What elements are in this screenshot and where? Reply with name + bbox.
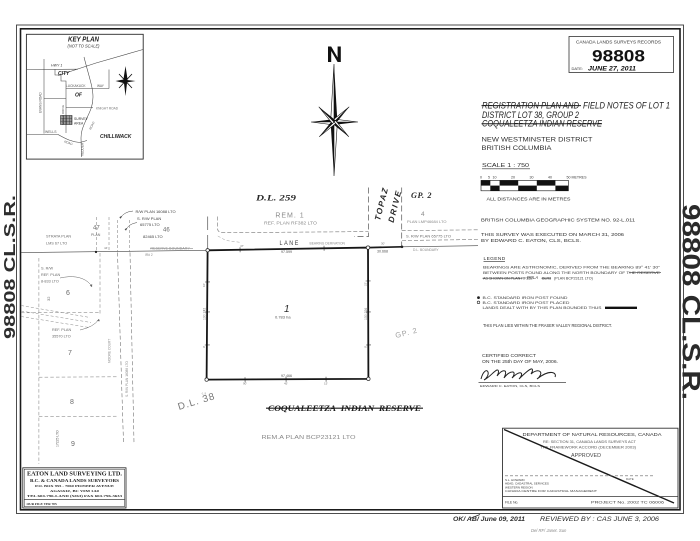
- svg-text:THIS PLAN LIES WITHIN THE FRAS: THIS PLAN LIES WITHIN THE FRASER VALLEY …: [483, 323, 612, 328]
- svg-text:BEARINGS ARE ASTRONOMIC, DERIV: BEARINGS ARE ASTRONOMIC, DERIVED FROM TH…: [483, 266, 661, 270]
- svg-text:GP. 2: GP. 2: [411, 191, 432, 200]
- svg-text:IR# 2: IR# 2: [145, 253, 153, 257]
- svg-text:AGASSIZ, BC V0M 1A0: AGASSIZ, BC V0M 1A0: [50, 489, 99, 493]
- svg-text:Del RF/ Janet. Sun: Del RF/ Janet. Sun: [531, 528, 567, 533]
- svg-text:AREA: AREA: [74, 122, 84, 126]
- svg-text:DATE: DATE: [626, 477, 634, 481]
- svg-text:R/W PLAN 16088 LTO: R/W PLAN 16088 LTO: [136, 209, 176, 214]
- svg-text:32: 32: [46, 296, 51, 301]
- svg-text:CERTIFIED CORRECT: CERTIFIED CORRECT: [482, 353, 536, 358]
- svg-text:PLAN: PLAN: [91, 233, 101, 237]
- svg-text:7: 7: [68, 350, 72, 357]
- svg-text:REVIEWED BY : CAS JUNE 3, 20: REVIEWED BY : CAS JUNE 3, 2006: [540, 517, 660, 523]
- svg-text:46: 46: [163, 228, 170, 234]
- svg-text:17225 LTO: 17225 LTO: [56, 430, 60, 447]
- svg-text:CHILLIWACK: CHILLIWACK: [100, 134, 132, 140]
- svg-text:KNIGHT ROAD: KNIGHT ROAD: [96, 107, 119, 111]
- svg-text:30': 30': [381, 242, 385, 246]
- svg-text:6: 6: [66, 290, 70, 297]
- svg-text:EVANS ROAD: EVANS ROAD: [39, 92, 43, 113]
- svg-text:CITY: CITY: [58, 71, 70, 77]
- svg-text:98808 CL.S.R.: 98808 CL.S.R.: [677, 204, 700, 400]
- svg-text:22': 22': [364, 282, 368, 286]
- svg-text:LEGEND: LEGEND: [484, 256, 506, 262]
- svg-text:POLA: POLA: [527, 275, 538, 280]
- svg-text:SCALE 1 : 750: SCALE 1 : 750: [482, 163, 529, 169]
- svg-text:B.C. & CANADA LANDS SURVEYORS: B.C. & CANADA LANDS SURVEYORS: [30, 478, 120, 483]
- svg-text:0: 0: [480, 175, 482, 179]
- svg-text:FILE No.: FILE No.: [505, 500, 518, 504]
- svg-text:98808: 98808: [592, 48, 645, 66]
- svg-text:WELLS: WELLS: [45, 130, 57, 134]
- svg-text:15': 15': [324, 382, 328, 386]
- svg-text:CANADA LANDS SURVEYS RECORDS: CANADA LANDS SURVEYS RECORDS: [576, 40, 661, 45]
- svg-text:BY EDWARD C. EATON, CLS, BCLS.: BY EDWARD C. EATON, CLS, BCLS.: [481, 238, 581, 243]
- svg-text:97.466: 97.466: [281, 374, 292, 378]
- svg-text:LUCKAKUCK: LUCKAKUCK: [66, 84, 86, 88]
- svg-text:AS SHOWN ON PLAN RF382: AS SHOWN ON PLAN RF382: [483, 277, 532, 281]
- svg-text:40: 40: [548, 175, 552, 179]
- svg-text:PROJECT No. 2002 TC 06006: PROJECT No. 2002 TC 06006: [591, 500, 664, 504]
- svg-text:1: 1: [284, 304, 290, 315]
- svg-text:45': 45': [284, 382, 288, 386]
- svg-text:97.599: 97.599: [281, 250, 292, 254]
- svg-text:S. R/W PLAN 16088 LTO: S. R/W PLAN 16088 LTO: [125, 361, 129, 397]
- svg-text:CANADA CENTRE FOR CADASTRAL MA: CANADA CENTRE FOR CADASTRAL MANAGEMENT: [505, 489, 597, 493]
- svg-text:8: 8: [70, 399, 74, 406]
- svg-text:10: 10: [493, 175, 497, 179]
- svg-text:LANDS DEALT WITH BY THIS PLAN: LANDS DEALT WITH BY THIS PLAN BOUNDED TH…: [483, 306, 603, 310]
- svg-text:VEDDER: VEDDER: [81, 142, 85, 156]
- svg-text:TEL 604-796-LAND (5263) FAX: TEL 604-796-LAND (5263) FAX 604-796-3633: [27, 494, 122, 498]
- svg-text:LMS 67 LTO: LMS 67 LTO: [46, 242, 67, 246]
- svg-text:50 METRES: 50 METRES: [567, 175, 588, 179]
- svg-text:BEARING DERIVATION: BEARING DERIVATION: [310, 242, 346, 246]
- svg-text:9: 9: [71, 441, 75, 448]
- svg-text:130.226: 130.226: [364, 308, 368, 320]
- svg-text:RE: SECTION 31, CANADA LANDS: RE: SECTION 31, CANADA LANDS SURVEYS ACT: [543, 440, 636, 444]
- svg-text:ALL DISTANCES ARE IN METRES: ALL DISTANCES ARE IN METRES: [487, 196, 571, 201]
- svg-text:STRATA PLAN: STRATA PLAN: [46, 235, 71, 239]
- svg-text:EATON LAND SURVEYING LTD.: EATON LAND SURVEYING LTD.: [27, 472, 123, 478]
- svg-text:B.C. STANDARD IRON POST PLACED: B.C. STANDARD IRON POST PLACED: [483, 301, 570, 305]
- svg-text:BLR3: BLR3: [542, 277, 551, 281]
- svg-text:OK/ AB/ June 09, 2011: OK/ AB/ June 09, 2011: [453, 516, 525, 523]
- svg-text:WAY: WAY: [97, 84, 105, 88]
- svg-text:REF. PLAN RF382 LTO: REF. PLAN RF382 LTO: [264, 221, 318, 226]
- svg-text:OUR FILE VER 705: OUR FILE VER 705: [27, 502, 57, 506]
- svg-text:THIS SURVEY WAS EXECUTED ON MA: THIS SURVEY WAS EXECUTED ON MARCH 31, 20…: [481, 232, 625, 237]
- svg-text:90': 90': [243, 382, 247, 386]
- svg-text:PLAN LMP46684 LTO: PLAN LMP46684 LTO: [407, 219, 446, 224]
- svg-text:STOLO DRIVE: STOLO DRIVE: [61, 105, 65, 125]
- svg-text:REM. 1: REM. 1: [275, 213, 304, 220]
- svg-text:S. R/W PLAN: S. R/W PLAN: [137, 216, 161, 221]
- svg-text:65775 LTO: 65775 LTO: [140, 222, 160, 227]
- svg-text:DEPARTMENT OF NATURAL RESOURCE: DEPARTMENT OF NATURAL RESOURCES, CANADA: [523, 432, 663, 438]
- svg-text:S. R/W PLAN 65775 LTO: S. R/W PLAN 65775 LTO: [406, 234, 451, 239]
- svg-text:JUNE 27, 2011: JUNE 27, 2011: [588, 65, 636, 72]
- svg-text:35570 LTO: 35570 LTO: [52, 335, 71, 339]
- svg-text:20: 20: [511, 175, 515, 179]
- svg-text:98808 CL.S.R.: 98808 CL.S.R.: [2, 195, 19, 339]
- svg-text:(PLAN BCP23121 LTO): (PLAN BCP23121 LTO): [554, 277, 593, 281]
- svg-text:THE FRAMEWORK ACCORD (DECEMBER: THE FRAMEWORK ACCORD (DECEMBER 2003): [540, 446, 636, 450]
- svg-text:REF. PLAN: REF. PLAN: [52, 328, 71, 332]
- svg-text:REF. PLAN: REF. PLAN: [41, 273, 60, 277]
- svg-text:APPROVED: APPROVED: [571, 453, 601, 459]
- svg-text:44': 44': [104, 246, 108, 250]
- svg-text:P.O. BOX 955 - 7060 PIONEER: P.O. BOX 955 - 7060 PIONEER AVENUE: [35, 484, 115, 488]
- svg-text:B.C. STANDARD IRON POST FOUND: B.C. STANDARD IRON POST FOUND: [483, 296, 568, 300]
- svg-text:BETWEEN POSTS FOUND ALONG THE: BETWEEN POSTS FOUND ALONG THE NORTH BOUN…: [483, 271, 661, 275]
- svg-text:EDWARD C. EATON, CLS, BCLS: EDWARD C. EATON, CLS, BCLS: [480, 384, 540, 388]
- svg-text:NEW WESTMINSTER DISTRICT: NEW WESTMINSTER DISTRICT: [482, 137, 593, 144]
- svg-text:4: 4: [421, 211, 425, 218]
- svg-text:82465 LTO: 82465 LTO: [143, 234, 163, 239]
- svg-text:MOORE COURT: MOORE COURT: [108, 339, 112, 363]
- svg-text:30: 30: [530, 175, 534, 179]
- svg-text:8-833 LTO: 8-833 LTO: [41, 280, 59, 284]
- svg-text:DATE:: DATE:: [572, 66, 583, 71]
- svg-text:KEY PLAN: KEY PLAN: [68, 35, 100, 44]
- svg-text:10': 10': [202, 283, 206, 287]
- svg-text:OF: OF: [75, 93, 83, 99]
- svg-text:130.242: 130.242: [203, 308, 207, 320]
- svg-text:5: 5: [488, 175, 490, 179]
- svg-text:ON THE 25th DAY OF MAY, 2006.: ON THE 25th DAY OF MAY, 2006.: [482, 359, 558, 364]
- svg-text:30.668: 30.668: [377, 250, 388, 254]
- svg-text:S. R/W: S. R/W: [41, 267, 53, 271]
- svg-text:BRITISH COLUMBIA: BRITISH COLUMBIA: [482, 145, 553, 152]
- svg-text:REM.A PLAN BCP23121 LTO: REM.A PLAN BCP23121 LTO: [262, 435, 357, 441]
- svg-text:D.L. 259: D.L. 259: [255, 193, 297, 203]
- svg-text:47': 47': [240, 244, 244, 248]
- svg-text:BRITISH COLUMBIA GEOGRAPHIC SY: BRITISH COLUMBIA GEOGRAPHIC SYSTEM NO. 9…: [481, 217, 636, 222]
- svg-text:0.783 ha: 0.783 ha: [275, 315, 291, 320]
- svg-text:LANE: LANE: [280, 240, 301, 247]
- svg-text:(NOT TO SCALE): (NOT TO SCALE): [68, 44, 101, 49]
- svg-text:HWY 1: HWY 1: [51, 64, 62, 68]
- svg-text:D.L. BOUNDARY: D.L. BOUNDARY: [413, 248, 439, 252]
